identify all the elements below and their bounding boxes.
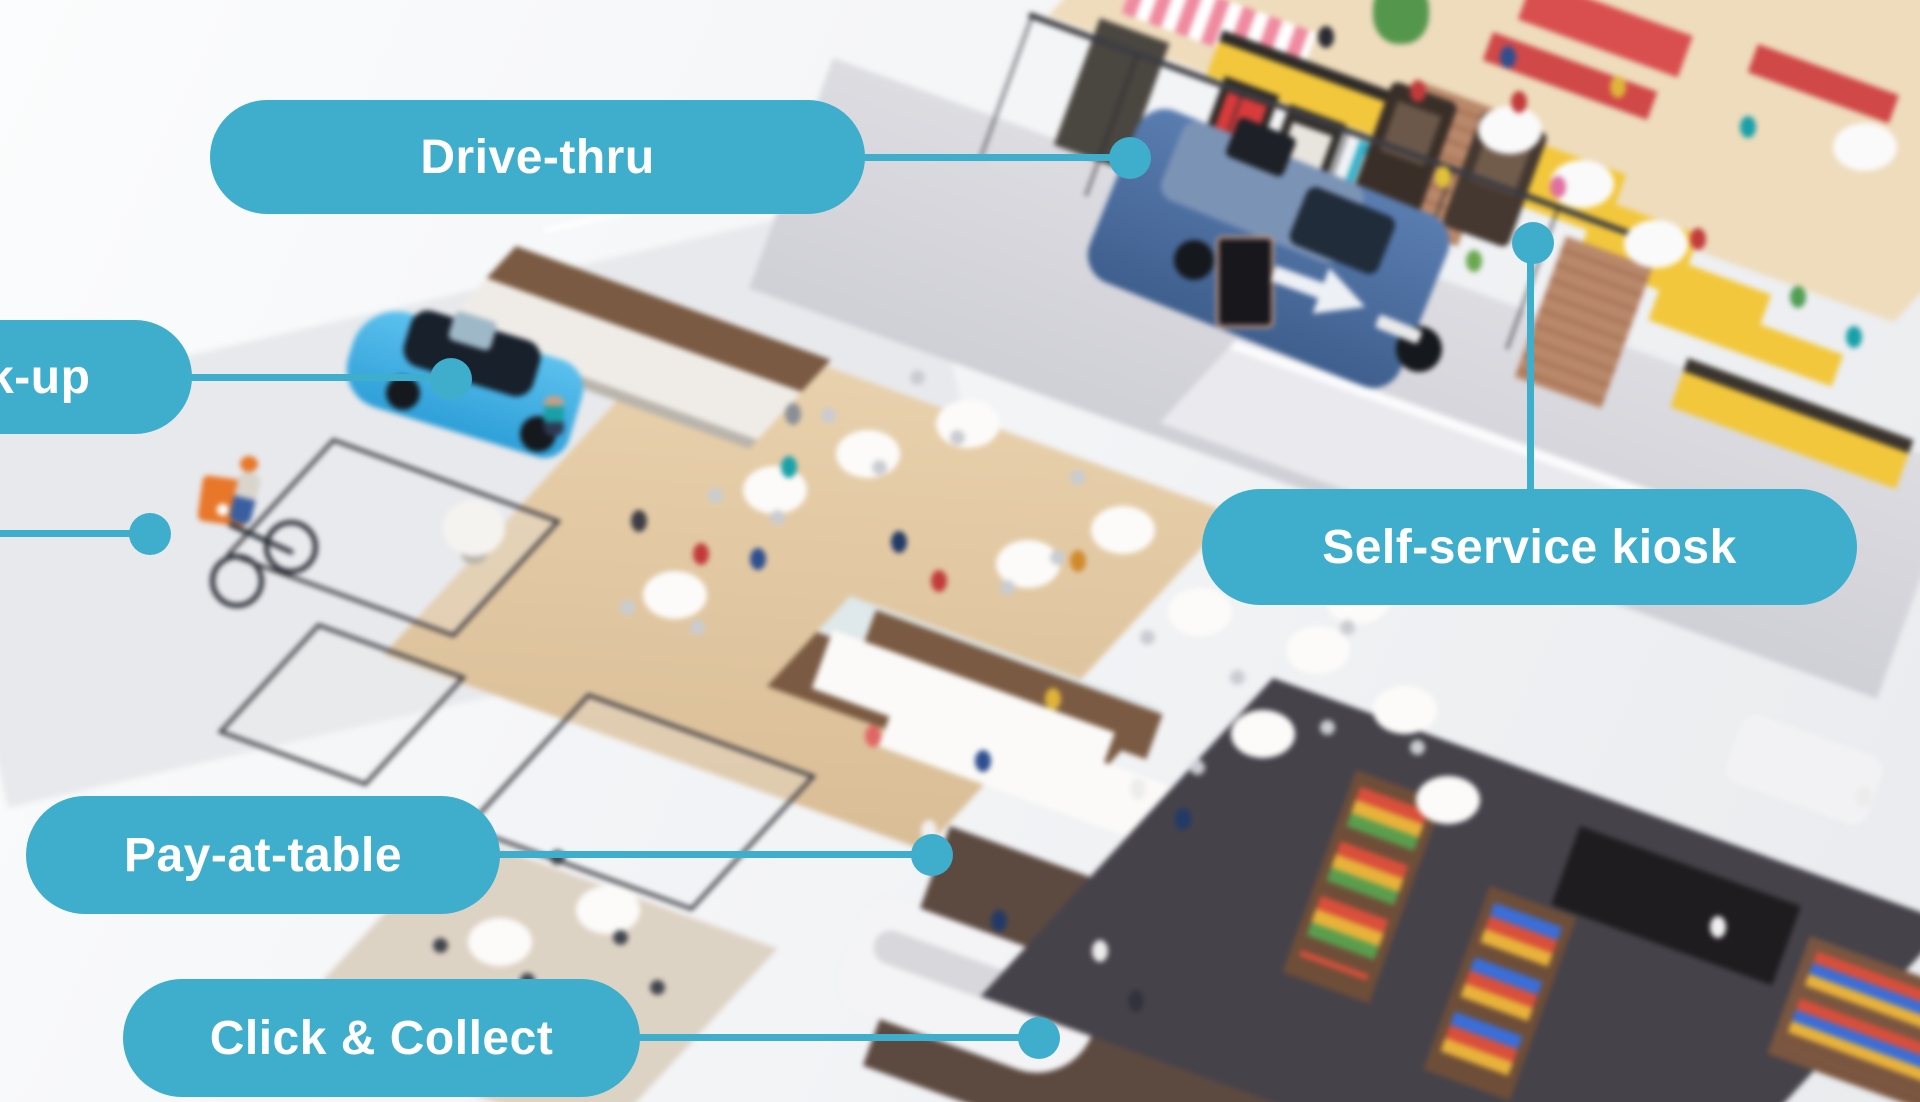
pick-up-label: Pick-up <box>0 320 192 434</box>
pickup-customer <box>544 396 564 436</box>
pick-up-callout-dot <box>430 358 472 400</box>
self-service-kiosk-callout-line <box>1527 243 1534 493</box>
drive-thru-label: Drive-thru <box>210 100 865 214</box>
drive-thru-callout-dot <box>1109 137 1151 179</box>
pick-up-callout-line <box>180 374 451 381</box>
click-and-collect-callout-line <box>630 1034 1039 1041</box>
drive-thru-totem <box>1216 236 1274 328</box>
pick-up-label-text: Pick-up <box>0 350 90 405</box>
pay-at-table-callout-line <box>490 851 932 858</box>
pay-at-table-callout-dot <box>911 834 953 876</box>
click-and-collect-label: Click & Collect <box>123 979 640 1097</box>
drive-thru-callout-line <box>860 154 1130 161</box>
click-and-collect-callout-dot <box>1018 1017 1060 1059</box>
pay-at-table-label-text: Pay-at-table <box>124 828 402 883</box>
delivery-callout-dot <box>129 513 171 555</box>
retail-sinks <box>1721 710 1887 829</box>
bike-wheel-rear <box>210 554 264 608</box>
illustration-canvas: Drive-thru Pick-up Self-service kiosk Pa… <box>0 0 1920 1102</box>
self-service-kiosk-label-text: Self-service kiosk <box>1322 520 1737 575</box>
suv-wheel-rear <box>1174 240 1214 280</box>
delivery-rider-helmet <box>240 456 258 472</box>
self-service-kiosk-label: Self-service kiosk <box>1202 489 1857 605</box>
pay-at-table-label: Pay-at-table <box>26 796 500 914</box>
self-service-kiosk-callout-dot <box>1512 222 1554 264</box>
delivery-callout-line <box>0 530 150 537</box>
pedestal-table <box>443 500 505 556</box>
click-and-collect-label-text: Click & Collect <box>210 1011 554 1066</box>
bike-wheel-front <box>264 520 318 574</box>
drive-thru-label-text: Drive-thru <box>420 130 654 185</box>
pickup-car-wheel-rear <box>386 376 420 410</box>
dining-tables <box>0 0 52 36</box>
